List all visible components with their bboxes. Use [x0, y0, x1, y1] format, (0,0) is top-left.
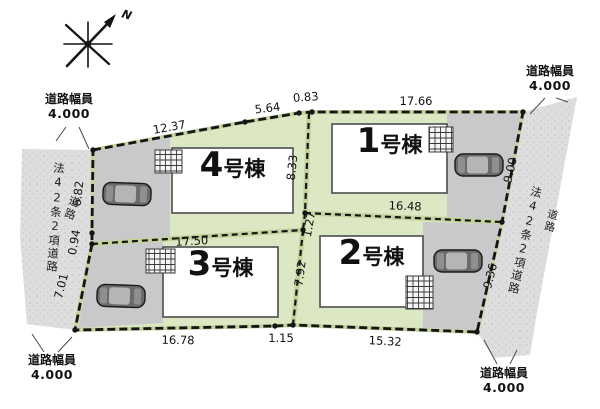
unit-number: 1: [357, 124, 381, 158]
unit-suffix: 号棟: [223, 159, 265, 180]
unit-label-3: 3 号棟: [163, 247, 278, 312]
unit-label-2: 2 号棟: [320, 236, 423, 302]
site-plan-drawing: 12.37 5.64 0.83 17.66 6.82 0.94 7.01 9.0…: [0, 0, 600, 409]
road-width-name: 道路幅員: [10, 353, 94, 367]
road-width-label-bottom-left: 道路幅員 4.000: [10, 353, 94, 382]
road-width-name: 道路幅員: [508, 64, 592, 78]
unit-label-4: 4 号棟: [172, 148, 293, 208]
road-width-value: 4.000: [508, 78, 592, 93]
dim-top-17-66: 17.66: [400, 94, 433, 108]
unit-number: 3: [188, 247, 212, 281]
dim-top-0-83: 0.83: [292, 89, 319, 105]
dim-bottom-1-15: 1.15: [268, 331, 294, 345]
car-icon: [97, 284, 146, 308]
dim-top-5-64: 5.64: [254, 100, 281, 117]
unit-number: 4: [200, 148, 224, 182]
unit-label-1: 1 号棟: [332, 124, 447, 188]
dim-bottom-16-78: 16.78: [161, 333, 194, 348]
car-icon: [103, 182, 152, 206]
road-width-name: 道路幅員: [462, 366, 546, 380]
dim-inner-16-48: 16.48: [388, 198, 421, 213]
road-width-value: 4.000: [462, 380, 546, 395]
unit-suffix: 号棟: [211, 258, 253, 279]
unit-suffix: 号棟: [380, 135, 422, 156]
road-width-name: 道路幅員: [27, 92, 111, 106]
road-width-label-top-right: 道路幅員 4.000: [508, 64, 592, 93]
unit-suffix: 号棟: [362, 247, 404, 268]
north-label: N: [120, 7, 134, 23]
car-icon: [455, 154, 503, 176]
car-icon: [434, 250, 482, 272]
compass-icon: N: [64, 7, 134, 67]
dim-bottom-15-32: 15.32: [368, 333, 402, 349]
site-plan: 12.37 5.64 0.83 17.66 6.82 0.94 7.01 9.0…: [0, 0, 600, 409]
road-width-label-bottom-right: 道路幅員 4.000: [462, 366, 546, 395]
road-width-value: 4.000: [27, 106, 111, 121]
unit-number: 2: [339, 236, 363, 270]
road-width-value: 4.000: [10, 367, 94, 382]
road-width-label-top-left: 道路幅員 4.000: [27, 92, 111, 121]
